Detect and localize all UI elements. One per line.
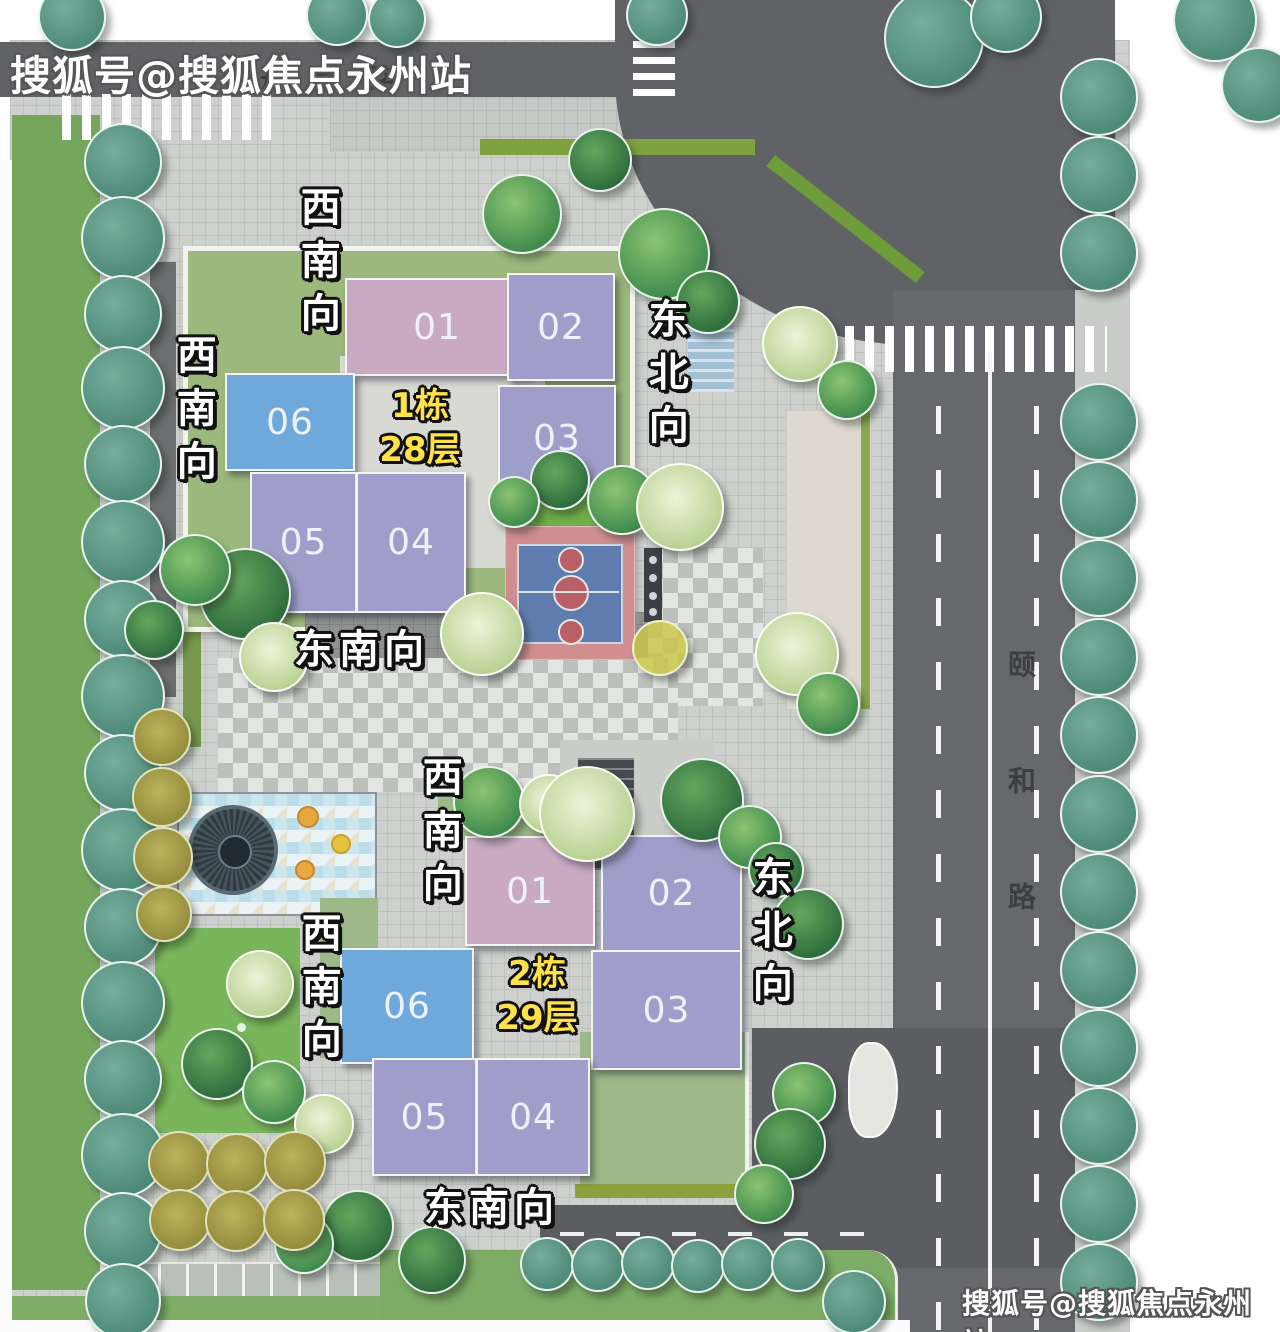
building1-tag: 1栋 28层 [350, 384, 490, 472]
hedge-plaza-west [183, 612, 201, 747]
unit-label: 03 [533, 418, 581, 459]
building2-tag: 2栋 29层 [467, 952, 607, 1040]
pool-float [297, 806, 319, 828]
unit-building1-06: 06 [225, 373, 355, 471]
lane-dash-line-left [936, 378, 941, 1330]
crosswalk-east [845, 326, 1107, 372]
unit-building2-03: 03 [591, 950, 742, 1070]
orientation-label-b1-s: 东南向 [294, 628, 429, 673]
tree [1221, 47, 1280, 123]
unit-building1-01: 01 [345, 278, 529, 376]
orientation-label-b2-w: 西南向 [295, 912, 340, 1071]
unit-label: 05 [401, 1097, 449, 1138]
building-name: 2栋 [467, 952, 607, 996]
entrance-canopy [688, 306, 734, 392]
unit-building1-05: 05 [250, 472, 357, 613]
pond-stone [207, 1068, 221, 1077]
orientation-label-b2-s: 东南向 [424, 1186, 559, 1231]
orientation-label-b1-w: 西南向 [170, 334, 215, 493]
unit-building2-06: 06 [340, 948, 474, 1064]
hedge-north [480, 139, 755, 155]
unit-label: 04 [387, 522, 435, 563]
orientation-label-b1-e: 东北向 [642, 298, 687, 457]
lane-solid-line [988, 352, 992, 1332]
court-center-circle [553, 575, 589, 611]
crosswalk-north [633, 2, 675, 96]
unit-label: 02 [537, 307, 585, 348]
pool-float [295, 860, 315, 880]
unit-building1-02: 02 [507, 273, 615, 381]
unit-label: 01 [506, 871, 554, 912]
building-floors: 29层 [467, 996, 607, 1040]
unit-building2-05: 05 [372, 1058, 477, 1176]
building-name: 1栋 [350, 384, 490, 428]
east-road-verge [1075, 290, 1130, 1332]
fountain [188, 805, 278, 895]
unit-label: 04 [509, 1097, 557, 1138]
unit-building1-04: 04 [356, 472, 466, 613]
watermark-top-left: 搜狐号@搜狐焦点永州站 [10, 42, 472, 102]
court-key-bottom [558, 619, 584, 645]
unit-label: 06 [266, 402, 314, 443]
pond-stone [237, 1023, 246, 1032]
court-green-apron [505, 498, 633, 528]
unit-label: 01 [413, 307, 461, 348]
play-lawn [155, 928, 300, 1133]
basketball-court [505, 526, 635, 660]
watermark-bottom-right: 搜狐号@搜狐焦点永州站 [962, 1282, 1280, 1332]
unit-building1-03: 03 [498, 385, 616, 491]
unit-building2-04: 04 [476, 1058, 590, 1176]
east-road-label: 颐和路 [1000, 650, 1040, 998]
hedge-south [575, 1184, 775, 1198]
unit-building2-02: 02 [601, 835, 742, 952]
unit-label: 06 [383, 986, 431, 1027]
court-half-line [517, 591, 619, 593]
orientation-label-b2-e: 东北向 [746, 856, 791, 1015]
unit-building2-01: 01 [465, 836, 595, 946]
site-plan: 规划路 颐和路 [0, 0, 1280, 1332]
unit-label: 02 [648, 873, 696, 914]
building2-lawn-north [438, 794, 603, 840]
orientation-label-b2-nw: 西南向 [416, 756, 461, 915]
unit-label: 03 [643, 990, 691, 1031]
court-key-top [558, 547, 584, 573]
bottom-margin [0, 1320, 910, 1332]
unit-label: 05 [280, 522, 328, 563]
bench-strip [644, 548, 662, 622]
pond-stone [230, 1048, 246, 1058]
building-floors: 28层 [350, 428, 490, 472]
east-walkway [786, 410, 872, 710]
tree [1173, 0, 1257, 62]
pool-float [331, 834, 351, 854]
fountain-center [218, 835, 252, 869]
left-margin [0, 160, 12, 1332]
walkway-hedge [861, 411, 870, 709]
south-green-strip [380, 1250, 898, 1322]
west-green-field [12, 115, 100, 1290]
lane-dash-line-south [560, 1232, 890, 1236]
orientation-label-b1-nw: 西南向 [294, 186, 339, 345]
